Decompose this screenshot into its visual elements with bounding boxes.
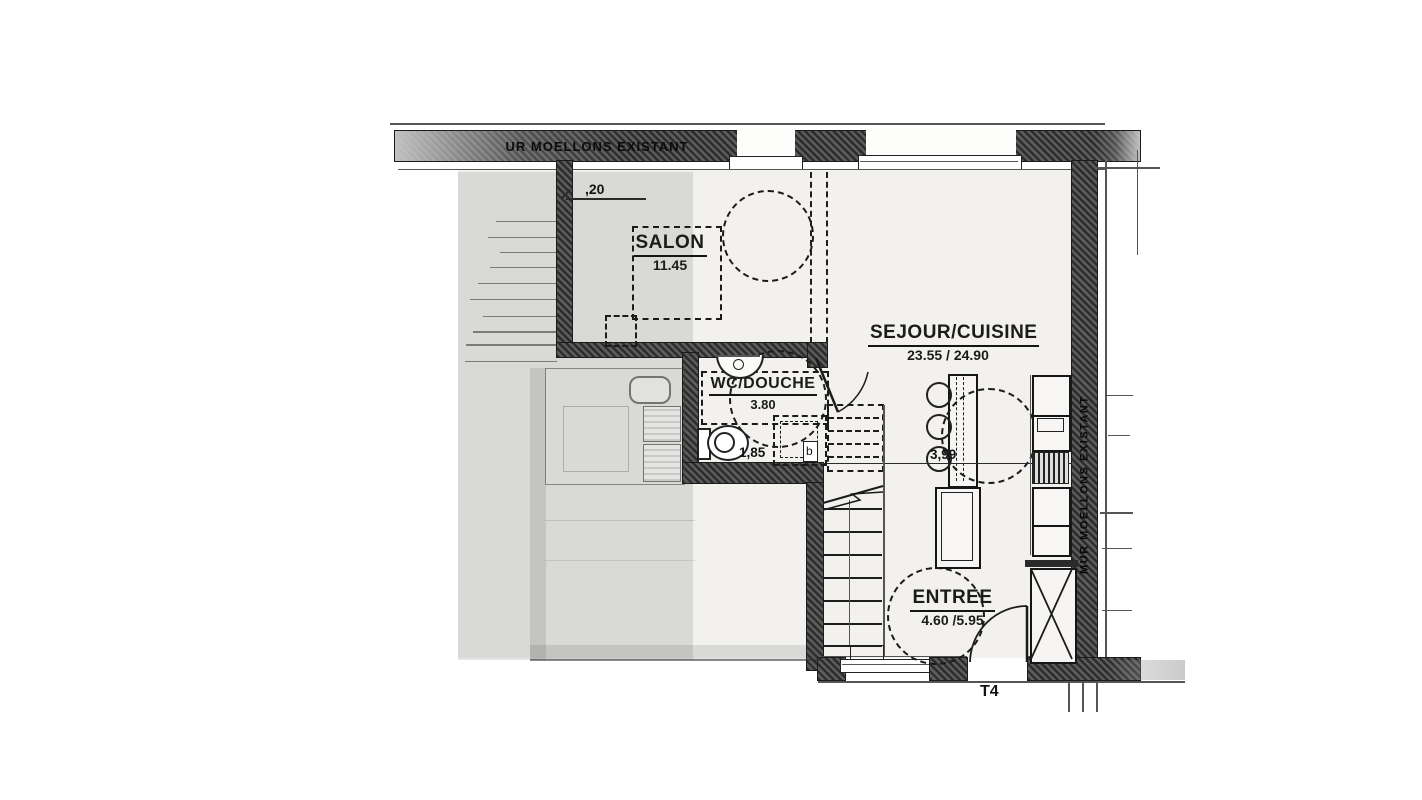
stair-tread-4 xyxy=(824,577,882,579)
neighbor-line-7 xyxy=(483,316,556,317)
right-tick-5 xyxy=(1102,610,1132,611)
sejour-area: 23.55 / 24.90 xyxy=(907,347,989,363)
counter-unit-a xyxy=(1032,375,1071,417)
neighbor-bottom-band xyxy=(530,645,820,660)
door-marker-label: b xyxy=(806,444,813,458)
sejour-label: SEJOUR/CUISINE 23.55 / 24.90 xyxy=(868,322,1028,365)
neighbor-line-2 xyxy=(488,237,556,238)
wc-label: WC/DOUCHE 3.80 xyxy=(702,375,824,415)
wc-basin-rim xyxy=(716,355,760,357)
salon-label: SALON 11.45 xyxy=(628,232,712,275)
top-right-face-line xyxy=(1097,167,1160,169)
salon-area: 11.45 xyxy=(653,257,687,273)
stair-last-step xyxy=(850,645,884,660)
counter-unit-c xyxy=(1032,487,1071,527)
neighbor-bottom-line xyxy=(530,659,820,661)
wc-dimension: 1,85 xyxy=(739,445,765,460)
stair-tread-dashed-3 xyxy=(828,443,879,445)
salon-name: SALON xyxy=(634,232,707,257)
partition-dim-leader xyxy=(566,198,646,200)
top-wall-smudge-right xyxy=(1095,131,1140,161)
right-tick-2 xyxy=(1108,435,1130,436)
partition-dimension: ,20 xyxy=(585,181,604,197)
neighbor-faint-line-a xyxy=(545,520,695,521)
window-2-glazing-line xyxy=(860,161,1018,162)
stair-tread-5 xyxy=(824,600,882,602)
stair-tread-6 xyxy=(824,623,882,625)
salon-turning-circle xyxy=(722,190,814,282)
neighbor-line-3 xyxy=(500,252,556,253)
neighbor-unit-3 xyxy=(563,406,629,472)
right-wall-label-text: MUR MOELLONS EXISTANT xyxy=(1079,396,1091,575)
removed-partition-dashed-2 xyxy=(826,172,828,343)
below-wall-tick-1 xyxy=(1068,682,1070,712)
right-exterior-face-line xyxy=(1105,161,1107,681)
entree-label: ENTREE 4.60 /5.95 xyxy=(905,587,1000,630)
stair-tread-dashed-1 xyxy=(828,417,879,419)
counter-unit-b-inner xyxy=(1037,418,1064,432)
stair-tread-dashed-2 xyxy=(828,430,879,432)
neighbor-line-5 xyxy=(478,283,556,284)
bottom-exterior-face-line xyxy=(818,681,1185,683)
top-right-secondary-line xyxy=(1137,150,1138,255)
stair-tread-1 xyxy=(824,508,882,510)
removed-partition-dashed-1 xyxy=(810,172,812,343)
kitchen-dimension: 3,99 xyxy=(930,447,956,462)
stairs-upper-dashed-outline xyxy=(827,404,884,472)
top-wall-label: UR MOELLONS EXISTANT xyxy=(462,133,732,159)
closet-top-bar xyxy=(1025,560,1078,567)
entree-window-glazing xyxy=(842,664,931,665)
counter-face-line xyxy=(1030,375,1031,555)
counter-unit-d xyxy=(1032,525,1071,557)
hob-circle-1 xyxy=(926,382,952,408)
neighbor-kitchen xyxy=(545,368,685,485)
neighbor-unit-1 xyxy=(643,406,681,442)
right-tick-1 xyxy=(1105,395,1133,396)
kitchen-turning-circle xyxy=(941,388,1037,484)
neighbor-line-4 xyxy=(490,267,556,268)
neighbor-sink xyxy=(629,376,671,404)
plan-type-label: T4 xyxy=(980,683,999,701)
below-wall-tick-3 xyxy=(1096,682,1098,712)
counter-grille xyxy=(1032,452,1069,484)
right-tick-4 xyxy=(1102,548,1132,549)
top-exterior-face-line xyxy=(390,123,1105,125)
entree-area: 4.60 /5.95 xyxy=(921,612,983,628)
neighbor-line-10 xyxy=(465,361,557,362)
neighbor-vertical-band xyxy=(530,368,546,660)
top-wall-label-text: UR MOELLONS EXISTANT xyxy=(506,139,689,154)
stair-tread-3 xyxy=(824,554,882,556)
wc-area: 3.80 xyxy=(750,397,775,412)
entree-name: ENTREE xyxy=(910,587,994,612)
wc-bottom-wall xyxy=(683,463,823,483)
window-2-sill xyxy=(858,155,1022,170)
entree-left-wall xyxy=(807,483,823,670)
floor-plan: UR MOELLONS EXISTANT MUR MOELLONS EXISTA… xyxy=(0,0,1422,800)
stair-center-line xyxy=(849,500,850,645)
stair-right-stringer xyxy=(883,405,885,657)
neighbor-line-1 xyxy=(496,221,556,222)
bottom-wall-smudge xyxy=(1108,660,1185,680)
neighbor-unit-2 xyxy=(643,444,681,482)
sejour-name: SEJOUR/CUISINE xyxy=(868,322,1039,347)
wc-name: WC/DOUCHE xyxy=(709,375,818,396)
neighbor-line-8 xyxy=(473,331,556,333)
below-wall-tick-2 xyxy=(1082,682,1084,712)
neighbor-line-6 xyxy=(470,299,556,300)
toilet-bowl-inner xyxy=(714,432,735,453)
top-interior-face-line xyxy=(398,169,1105,170)
salon-zone-step-dashed xyxy=(605,315,637,347)
neighbor-line-9 xyxy=(466,344,556,346)
stair-tread-dashed-4 xyxy=(828,456,879,458)
closet-box xyxy=(1030,568,1077,664)
neighbor-faint-line-b xyxy=(545,560,695,561)
wc-basin-drain xyxy=(733,359,744,370)
stair-tread-2 xyxy=(824,531,882,533)
window-1-sill xyxy=(729,156,803,170)
right-tick-3 xyxy=(1100,512,1133,514)
appliance-box-inner xyxy=(941,492,973,561)
